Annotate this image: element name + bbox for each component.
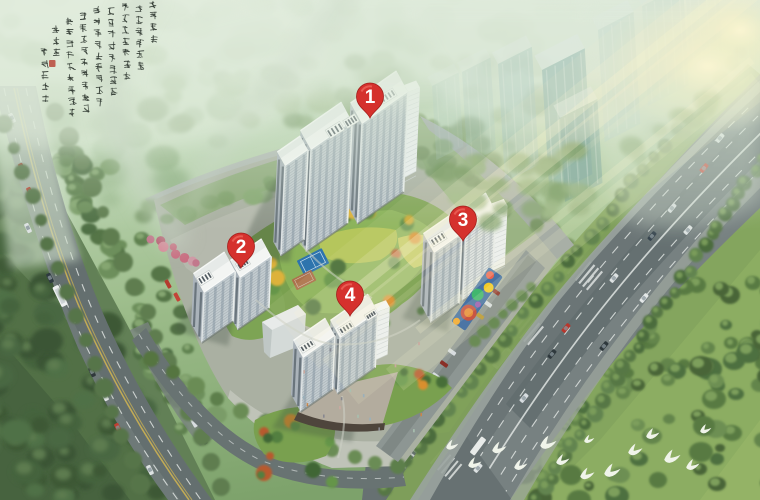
svg-text:4: 4 [345,285,356,306]
svg-text:1: 1 [365,87,376,108]
svg-text:2: 2 [236,237,247,258]
svg-text:3: 3 [458,210,469,231]
